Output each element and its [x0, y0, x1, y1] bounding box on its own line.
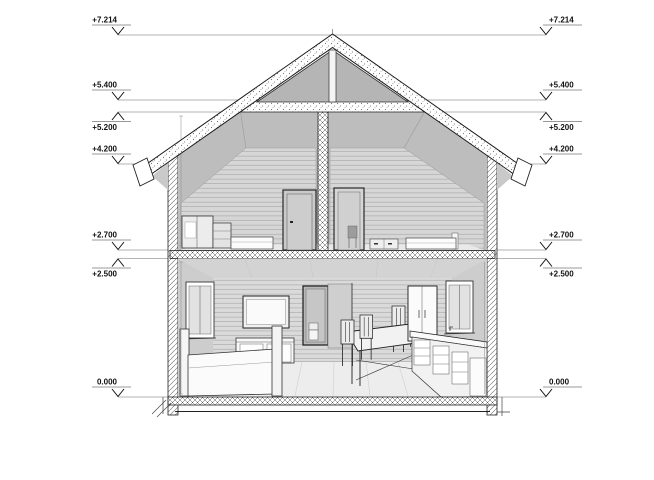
architectural-section-page: +7.214 +5.400 +5.200 +4.200 +2.700 +2.50…	[0, 0, 654, 480]
bathroom-door	[303, 286, 328, 345]
elevation-label: +4.200	[549, 145, 574, 154]
elevation-marker-right-2500: +2.500	[540, 259, 582, 279]
elevation-label: +2.500	[549, 270, 574, 279]
attic-partition-wall	[318, 112, 328, 251]
elevation-marker-right-0000: 0.000	[540, 378, 582, 397]
ground-mark-right	[497, 397, 510, 416]
elevation-marker-right-4200: +4.200	[540, 145, 582, 164]
elevation-label: 0.000	[97, 378, 118, 387]
elevation-label: +4.200	[92, 145, 117, 154]
elevation-marker-right-2700: +2.700	[540, 231, 582, 250]
ground-ceiling	[178, 259, 487, 278]
floor-slab-band	[168, 397, 497, 405]
elevation-marker-left-2500: +2.500	[92, 259, 131, 279]
elevation-label: 0.000	[549, 378, 570, 387]
elevation-marker-left-7214: +7.214	[92, 16, 131, 35]
elevation-marker-left-5400: +5.400	[92, 81, 131, 100]
elevation-label: +5.400	[549, 81, 574, 90]
elevation-label: +2.700	[549, 231, 574, 240]
elevation-label: +2.500	[92, 270, 117, 279]
section-drawing: +7.214 +5.400 +5.200 +4.200 +2.700 +2.50…	[0, 0, 654, 480]
elevation-marker-left-4200: +4.200	[92, 145, 131, 164]
foundation	[152, 397, 510, 417]
toilet	[309, 323, 318, 330]
attic-nightstands	[370, 239, 398, 249]
window-right	[444, 281, 475, 334]
attic-right-door-open	[334, 188, 364, 250]
attic-cabinet	[213, 223, 231, 248]
elevation-marker-left-5200: +5.200	[92, 113, 131, 133]
elevation-label: +5.200	[92, 123, 117, 132]
ground-interior	[178, 259, 487, 398]
elevation-marker-right-7214: +7.214	[540, 16, 582, 35]
elevation-label: +5.200	[549, 123, 574, 132]
elevation-label: +5.400	[92, 81, 117, 90]
elevation-marker-left-0000: 0.000	[92, 378, 131, 397]
attic-wardrobe	[182, 216, 213, 248]
elevation-marker-right-5400: +5.400	[540, 81, 582, 100]
tv-screen	[243, 296, 289, 328]
attic-floor-band	[170, 251, 495, 259]
attic-interior	[178, 112, 487, 251]
house-section	[133, 29, 532, 417]
elevation-label: +2.700	[92, 231, 117, 240]
attic-left-bed	[231, 237, 273, 249]
collar-ceiling-band	[241, 101, 425, 112]
elevation-marker-right-5200: +5.200	[540, 113, 582, 133]
elevation-label: +7.214	[92, 16, 117, 25]
elevation-marker-left-2700: +2.700	[92, 231, 131, 250]
elevation-label: +7.214	[549, 16, 574, 25]
attic-left-door	[283, 190, 316, 250]
